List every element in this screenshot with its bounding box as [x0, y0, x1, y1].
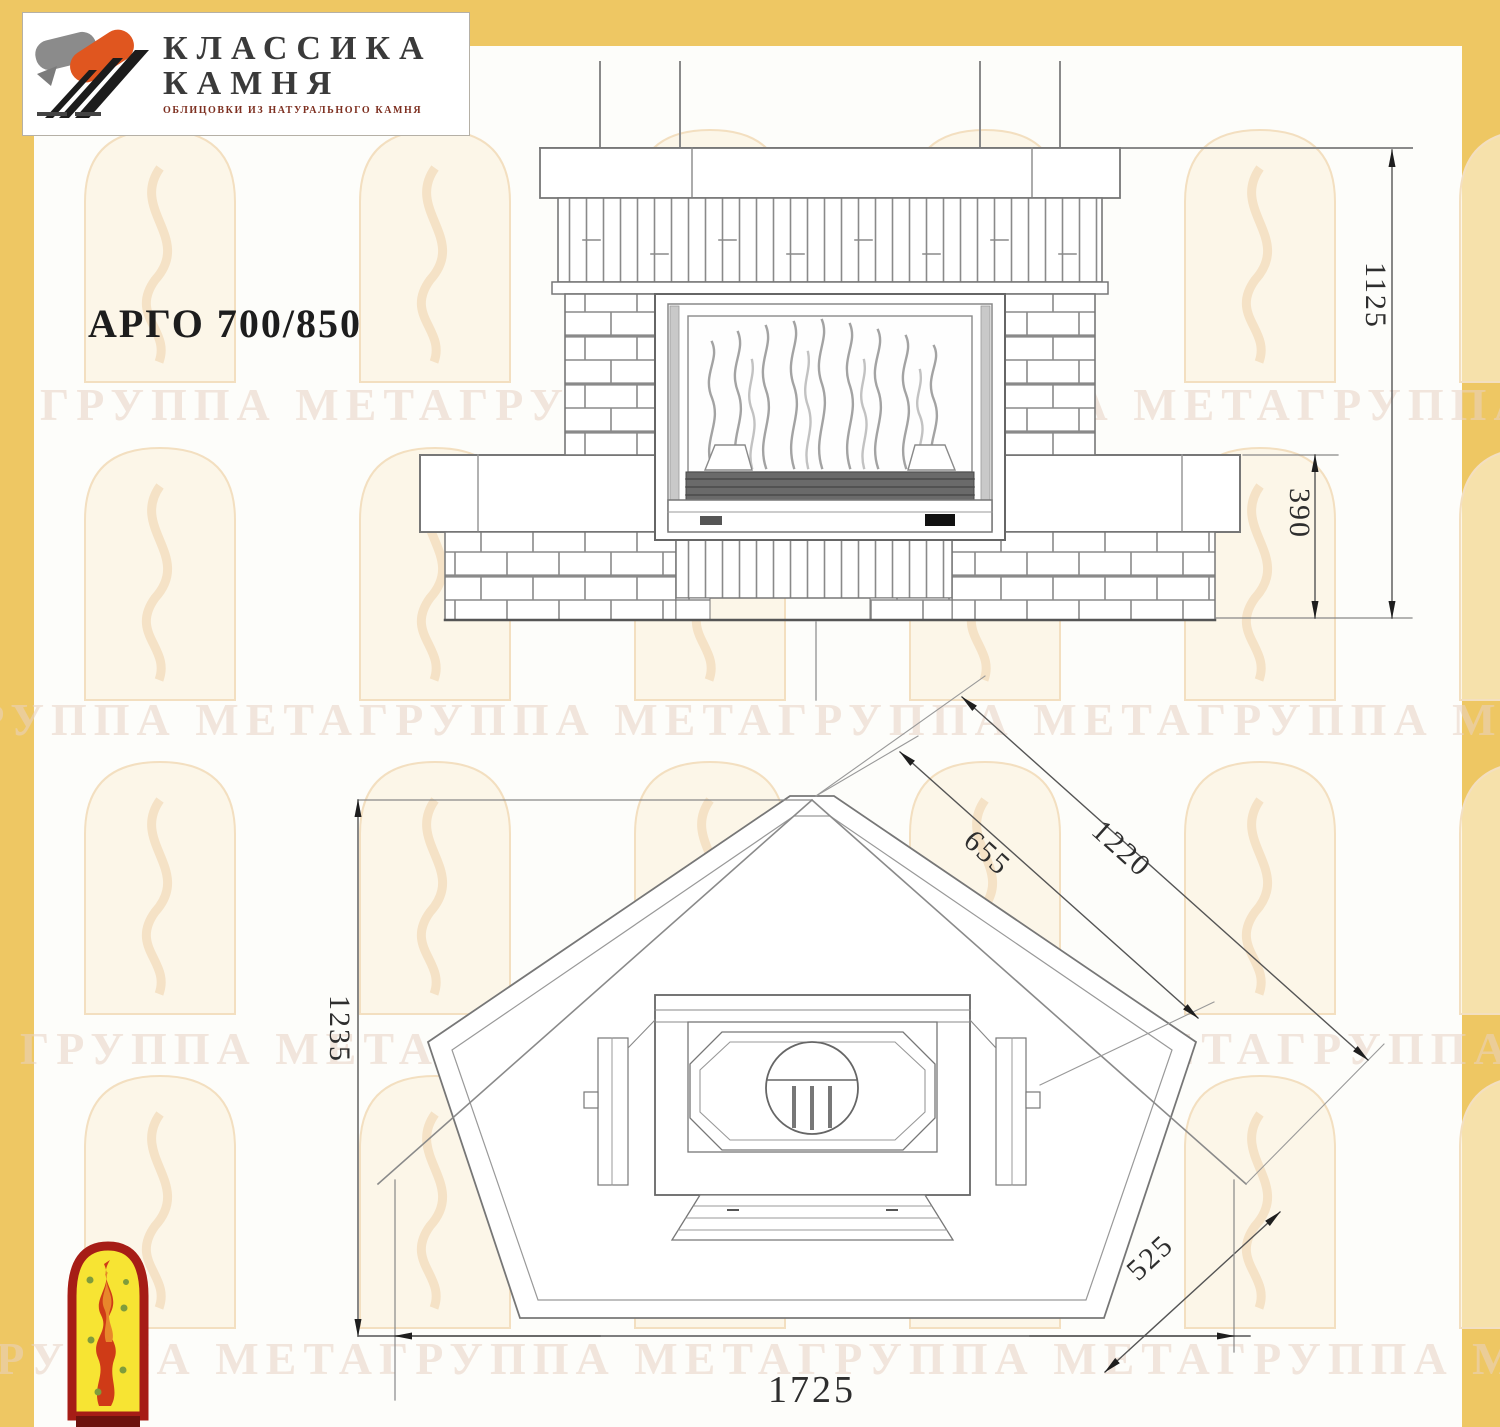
dim-label-655: 655 — [957, 824, 1017, 883]
dim-label-1125: 1125 — [1359, 262, 1392, 329]
pillar-left — [565, 294, 655, 455]
technical-drawing: 1125 390 — [0, 0, 1500, 1427]
stone-logo-icon — [31, 22, 159, 126]
dim-label-1725: 1725 — [768, 1369, 856, 1411]
side-cheek-left — [598, 1038, 628, 1185]
dim-front-height: 1125 — [1215, 150, 1412, 618]
dim-label-1220: 1220 — [1085, 814, 1158, 884]
brand-logo: КЛАССИКА КАМНЯ ОБЛИЦОВКИ ИЗ НАТУРАЛЬНОГО… — [22, 12, 470, 136]
front-elevation-view: 1125 390 — [420, 62, 1412, 700]
chimney-pipes — [600, 62, 1060, 148]
frieze-ledge — [552, 282, 1108, 294]
dim-label-390: 390 — [1283, 488, 1316, 539]
product-title: АРГО 700/850 — [88, 300, 362, 347]
base-brickwork-right — [952, 532, 1215, 620]
sill-handle — [925, 514, 955, 526]
brand-name-line2: КАМНЯ — [163, 66, 433, 102]
dim-label-1235: 1235 — [323, 995, 356, 1063]
catalog-page: ГРУППА МЕТАГРУППА МЕТАГРУППА МЕТАГРУППА … — [0, 0, 1500, 1427]
mantel-shelf — [540, 148, 1120, 198]
brand-tagline: ОБЛИЦОВКИ ИЗ НАТУРАЛЬНОГО КАМНЯ — [163, 105, 433, 116]
plan-view: 655 1220 1235 525 — [323, 676, 1384, 1411]
sill-vent — [700, 516, 722, 525]
brand-name-line1: КЛАССИКА — [163, 32, 433, 66]
frieze-slats — [558, 198, 1102, 282]
side-cheek-right — [996, 1038, 1026, 1185]
firebox-front — [655, 294, 1005, 540]
base-brickwork-left — [445, 532, 676, 620]
pillar-right — [1005, 294, 1095, 455]
dim-base-height: 390 — [1243, 455, 1338, 618]
flame-arch-icon — [64, 1238, 152, 1427]
base-slat-panel — [676, 532, 952, 598]
